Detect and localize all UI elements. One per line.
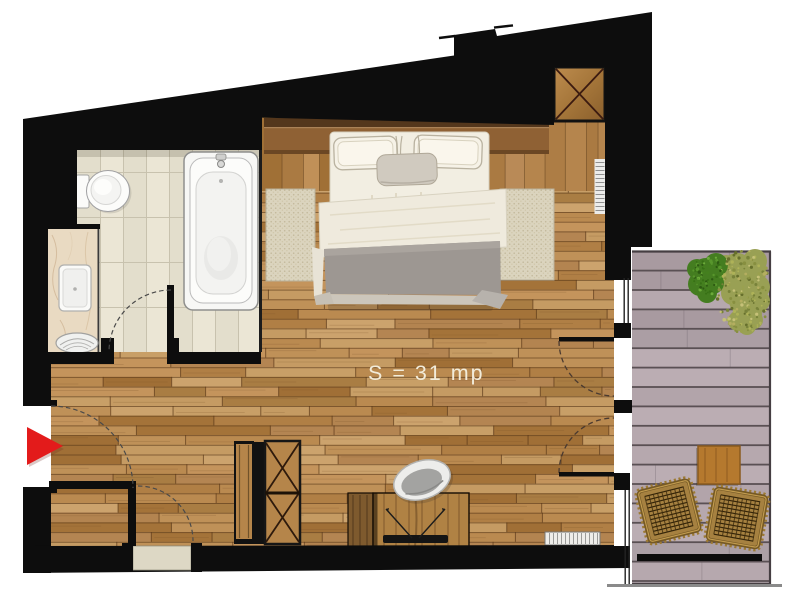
svg-text:S = 31 mp: S = 31 mp	[368, 361, 485, 385]
